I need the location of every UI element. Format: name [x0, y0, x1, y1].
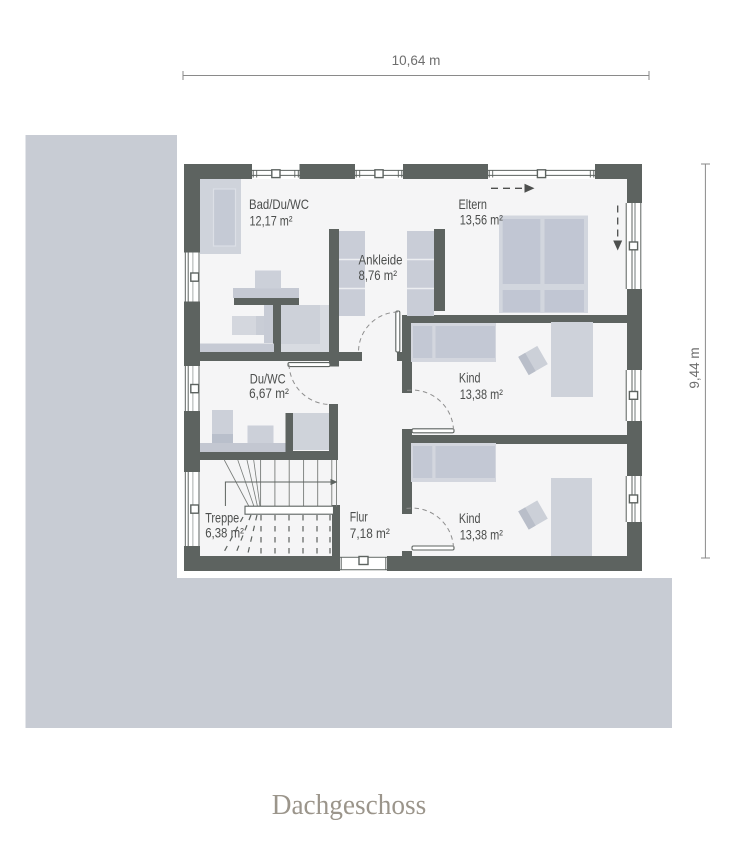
- svg-text:Kind: Kind: [459, 510, 481, 526]
- svg-text:13,56 m²: 13,56 m²: [460, 212, 503, 228]
- svg-text:13,38 m²: 13,38 m²: [460, 386, 503, 402]
- svg-text:9,44 m: 9,44 m: [687, 347, 702, 388]
- svg-text:13,38 m²: 13,38 m²: [460, 526, 503, 542]
- svg-text:12,17 m²: 12,17 m²: [250, 212, 293, 228]
- svg-text:Kind: Kind: [459, 370, 481, 386]
- svg-text:Bad/Du/WC: Bad/Du/WC: [249, 196, 309, 212]
- svg-text:Du/WC: Du/WC: [250, 371, 286, 387]
- svg-text:8,76 m²: 8,76 m²: [359, 267, 398, 283]
- svg-text:10,64 m: 10,64 m: [392, 53, 441, 68]
- svg-text:6,67 m²: 6,67 m²: [249, 385, 289, 401]
- svg-text:Flur: Flur: [350, 509, 368, 525]
- svg-text:Eltern: Eltern: [459, 196, 488, 212]
- svg-text:7,18 m²: 7,18 m²: [350, 525, 390, 541]
- svg-text:Dachgeschoss: Dachgeschoss: [272, 790, 427, 821]
- svg-text:6,38 m²: 6,38 m²: [205, 525, 244, 541]
- svg-text:Ankleide: Ankleide: [359, 252, 403, 268]
- svg-text:Treppe: Treppe: [205, 509, 239, 525]
